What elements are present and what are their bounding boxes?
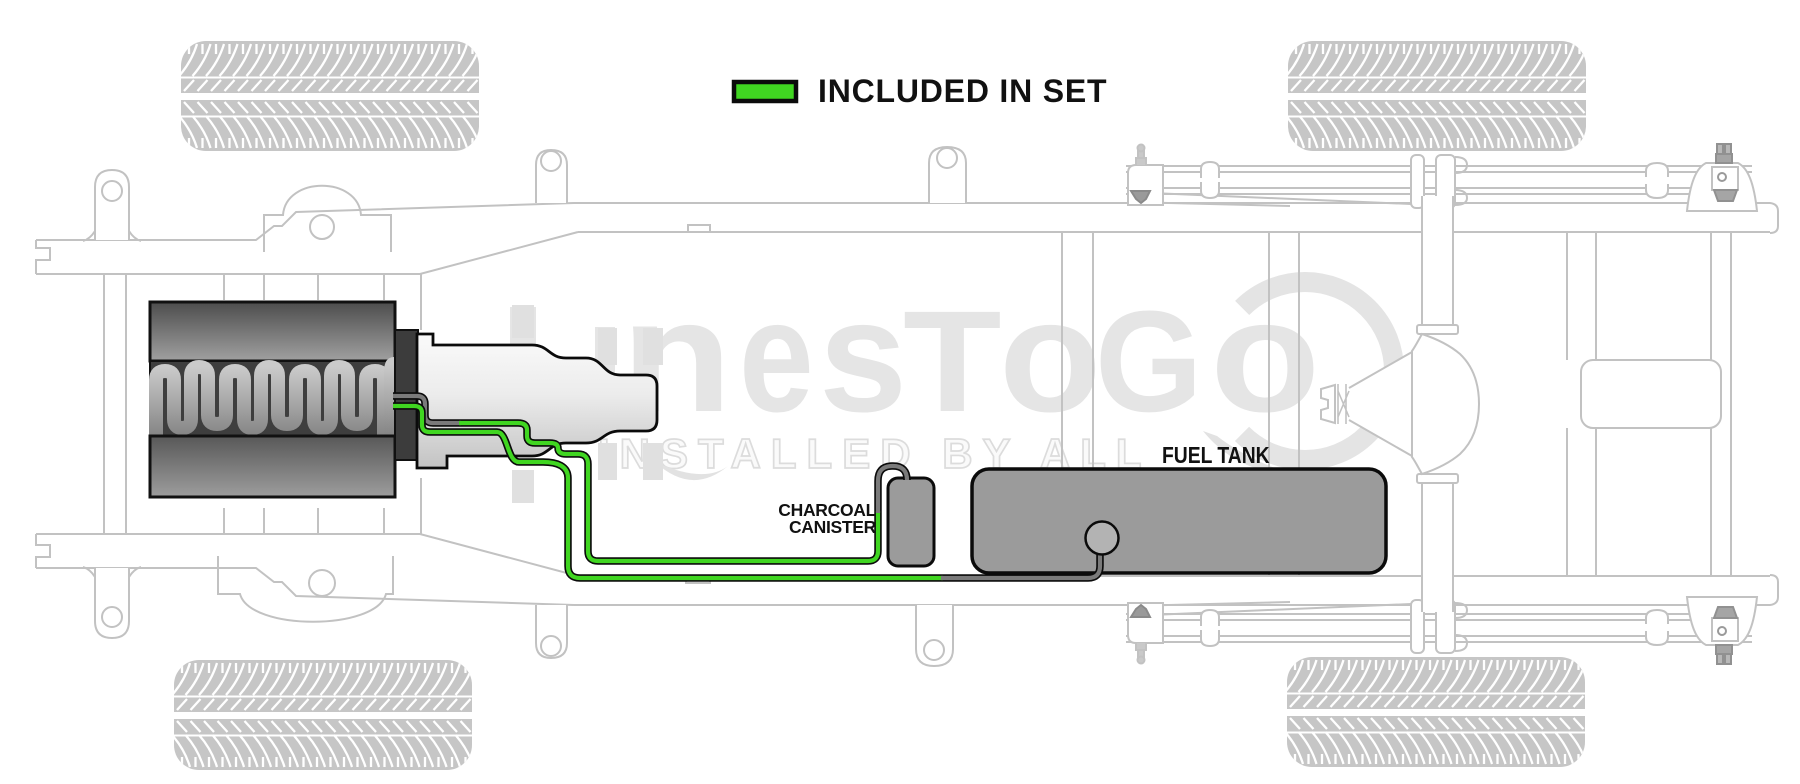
svg-text:e: e [739,267,814,446]
svg-text:s: s [819,266,907,445]
svg-text:o: o [999,266,1102,445]
svg-text:T: T [903,282,1002,442]
svg-text:o: o [1210,267,1320,446]
svg-text:FUEL TANK: FUEL TANK [1162,444,1270,469]
svg-text:G: G [1095,280,1203,441]
svg-text:INCLUDED IN SET: INCLUDED IN SET [818,73,1107,109]
svg-text:CANISTER: CANISTER [789,517,877,537]
